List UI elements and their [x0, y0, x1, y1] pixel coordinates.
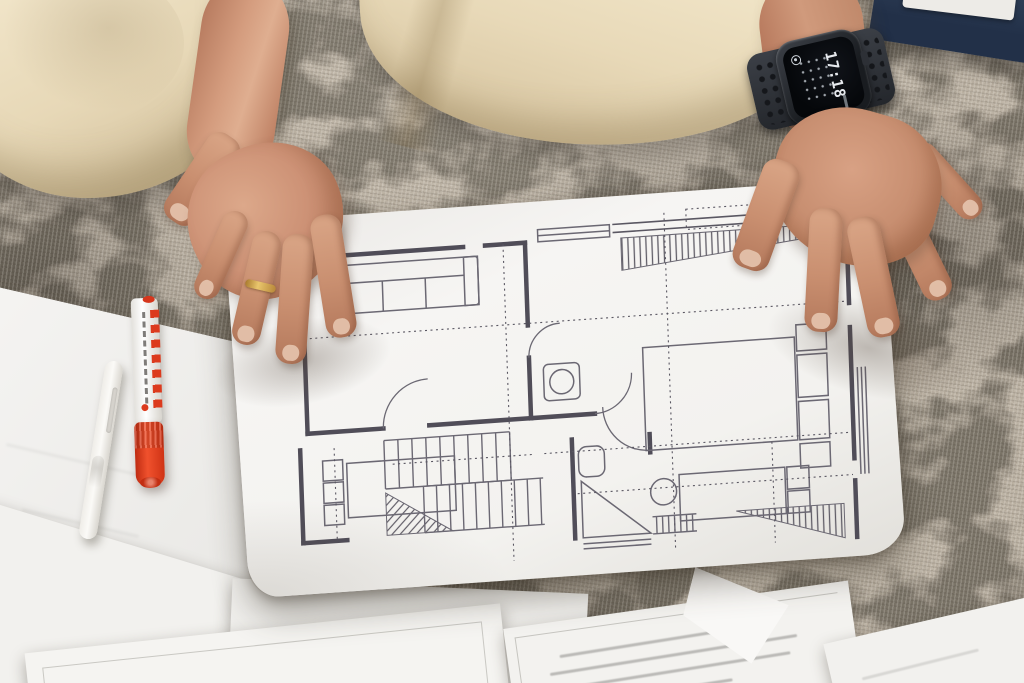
- shower-diagonal: [581, 477, 651, 538]
- marker-label-text: [142, 312, 148, 404]
- photo-scene: 17:18: [0, 0, 1024, 683]
- illegible-text-line: [862, 649, 979, 681]
- toilet: [543, 362, 580, 401]
- left-arm: [182, 0, 426, 422]
- marker-body: [131, 298, 162, 423]
- under-stair-hatch: [386, 488, 453, 535]
- marker-label-dashes: [150, 310, 162, 410]
- bath-shelf: [578, 445, 605, 477]
- bed-bottom-left: [347, 456, 457, 518]
- pen-smudge: [87, 455, 105, 496]
- right-index-finger: [804, 207, 843, 333]
- marker-label-dot: [141, 404, 148, 411]
- stair-hatch-bottom-right: [736, 503, 845, 545]
- ghost-text-line: [6, 443, 153, 480]
- marker-top-plug: [143, 296, 155, 303]
- right-arm: 17:18: [735, 0, 1024, 408]
- washbasin: [650, 478, 677, 506]
- red-marker: [127, 297, 170, 492]
- marker-cap: [134, 421, 165, 486]
